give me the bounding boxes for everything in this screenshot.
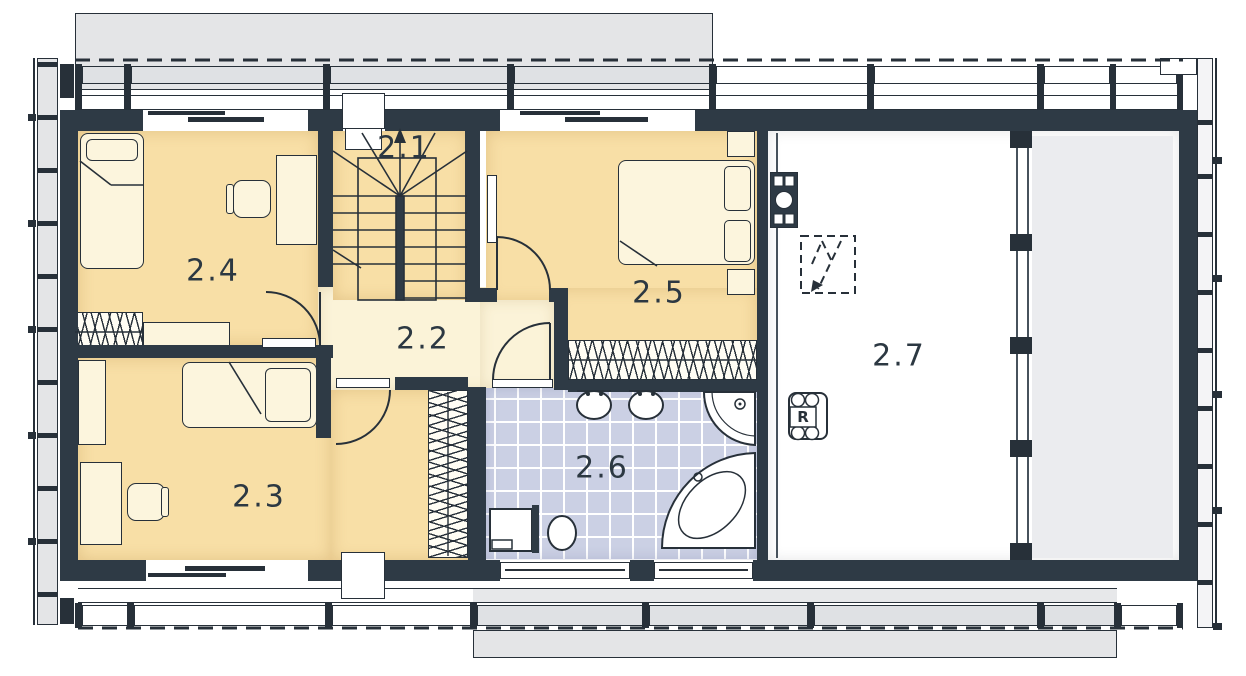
railing-post — [1114, 603, 1121, 628]
floor-plan: 2.1 2.2 2.3 2.4 2.5 2.6 2.7 R — [0, 0, 1246, 676]
desk — [80, 462, 122, 545]
cabinet — [78, 360, 106, 445]
railing-rail-top — [78, 95, 1180, 110]
pillow — [724, 166, 751, 211]
rafter-bar — [37, 380, 58, 385]
corner-post — [60, 598, 74, 624]
rafter-nub — [28, 326, 36, 333]
wall — [318, 131, 333, 287]
wall — [630, 560, 654, 581]
railing-rail-bottom — [473, 588, 1117, 603]
nightstand — [727, 131, 755, 157]
door-threshold — [492, 379, 553, 388]
wardrobe-hatch — [428, 390, 468, 558]
wall — [383, 560, 500, 581]
rafter-nub — [1213, 157, 1222, 164]
rafter-bar — [1197, 290, 1213, 295]
chimney-icon — [770, 172, 798, 228]
window-glass-line — [659, 569, 748, 571]
wall — [753, 560, 1197, 581]
chair-back — [226, 184, 234, 214]
hall-pocket-floor — [480, 300, 554, 388]
nightstand — [727, 269, 755, 295]
rafter-bar — [37, 115, 58, 120]
roof-edge-right — [1197, 58, 1213, 628]
window-sill — [185, 566, 265, 571]
rafter-bar — [1197, 522, 1213, 527]
railing-post — [75, 64, 82, 110]
railing-post — [867, 64, 874, 110]
rafter-bar — [1197, 580, 1213, 585]
railing-post — [709, 64, 716, 110]
window-sill — [188, 117, 264, 122]
room-label-2.5: 2.5 — [632, 276, 686, 311]
window-sill — [565, 117, 648, 122]
window-sill — [520, 111, 600, 115]
railing-post — [75, 603, 82, 628]
room-2.7-open-area — [1032, 136, 1173, 558]
room-label-2.6: 2.6 — [575, 451, 629, 486]
wall — [308, 110, 343, 131]
door-threshold — [262, 338, 316, 348]
railing-panel — [330, 66, 510, 84]
partition-post — [1010, 234, 1032, 251]
chair-back — [161, 487, 169, 517]
window — [342, 93, 385, 129]
rafter-bar — [37, 592, 58, 597]
wall — [60, 110, 78, 581]
railing-post — [1177, 603, 1183, 628]
railing-post — [807, 603, 814, 628]
wall — [554, 302, 568, 390]
roof-edge-right-outline — [1215, 58, 1217, 628]
railing-panel — [1044, 66, 1110, 84]
rafter-nub — [1213, 275, 1222, 282]
railing-panel — [1121, 605, 1177, 626]
wall — [385, 110, 500, 131]
railing-post — [1037, 603, 1044, 628]
room-label-2.3: 2.3 — [232, 480, 286, 515]
wall — [480, 288, 497, 302]
desk — [276, 155, 317, 245]
railing-post — [470, 603, 477, 628]
radiator — [487, 175, 497, 243]
wall — [468, 387, 486, 560]
wall — [316, 358, 331, 438]
rafter-bar — [37, 168, 58, 173]
rafter-nub — [1213, 507, 1222, 514]
wall — [532, 505, 539, 553]
rafter-bar — [37, 486, 58, 491]
rafter-bar — [37, 539, 58, 544]
pillow — [265, 368, 311, 422]
rafter-bar — [1197, 464, 1213, 469]
rafter-nub — [1213, 623, 1222, 630]
railing-panel — [131, 66, 326, 84]
wall — [1179, 110, 1197, 581]
room-label-2.2: 2.2 — [396, 322, 450, 357]
railing-panel — [874, 66, 1040, 84]
railing-post — [642, 603, 649, 628]
railing-post — [124, 64, 131, 110]
rafter-nub — [28, 432, 36, 439]
rafter-bar — [37, 221, 58, 226]
rafter-nub — [28, 220, 36, 227]
railing-rail-bottom — [78, 588, 473, 603]
room-label-2.1: 2.1 — [377, 131, 431, 166]
wall — [757, 131, 768, 560]
railing-panel — [649, 605, 810, 626]
rafter-nub — [1213, 391, 1222, 398]
partition-post — [1010, 131, 1032, 148]
rafter-bar — [37, 274, 58, 279]
wardrobe-hatch — [568, 340, 757, 380]
door-threshold — [336, 378, 390, 388]
chair — [127, 483, 165, 521]
railing-panel — [332, 605, 473, 626]
room-label-2.4: 2.4 — [186, 254, 240, 289]
railing-panel — [82, 605, 130, 626]
partition-post — [1010, 440, 1032, 457]
chair — [233, 180, 271, 218]
railing-panel — [814, 605, 1040, 626]
wall — [308, 560, 343, 581]
railing-panel — [716, 66, 870, 84]
rafter-nub — [28, 538, 36, 545]
railing-panel — [134, 605, 328, 626]
railing-panel — [514, 66, 712, 84]
partition-post — [1010, 543, 1032, 560]
railing-post — [1037, 64, 1044, 110]
rafter-bar — [1197, 120, 1213, 125]
partition-post — [1010, 337, 1032, 354]
rafter-bar — [1197, 348, 1213, 353]
window-sill — [148, 111, 225, 115]
rafter-nub — [28, 114, 36, 121]
recuperator-label: R — [790, 407, 816, 427]
wall — [695, 110, 1197, 131]
rafter-bar — [1197, 232, 1213, 237]
wall — [465, 131, 480, 302]
rafter-bar — [1197, 406, 1213, 411]
rafter-bar — [37, 327, 58, 332]
railing-post — [1110, 64, 1116, 110]
rafter-bar — [1197, 174, 1213, 179]
railing-post — [507, 64, 514, 110]
pillow — [86, 139, 138, 161]
room-label-2.7: 2.7 — [872, 339, 926, 374]
railing-end-cap — [1160, 58, 1197, 75]
railing-panel — [477, 605, 645, 626]
balcony-door — [341, 552, 385, 599]
railing-panel — [1044, 605, 1117, 626]
corner-post — [60, 64, 74, 98]
wall — [549, 288, 568, 302]
pillow — [724, 220, 751, 262]
wall — [395, 377, 468, 390]
railing-panel — [82, 66, 127, 84]
washing-machine — [489, 508, 533, 552]
window-glass-line — [505, 569, 625, 571]
railing-post — [325, 603, 332, 628]
roof-overhang-bottom — [473, 630, 1117, 658]
railing-post — [323, 64, 330, 110]
rafter-bar — [37, 433, 58, 438]
railing-post — [127, 603, 134, 628]
window-sill — [148, 573, 226, 577]
wall — [568, 380, 757, 392]
rafter-bar — [37, 62, 58, 67]
